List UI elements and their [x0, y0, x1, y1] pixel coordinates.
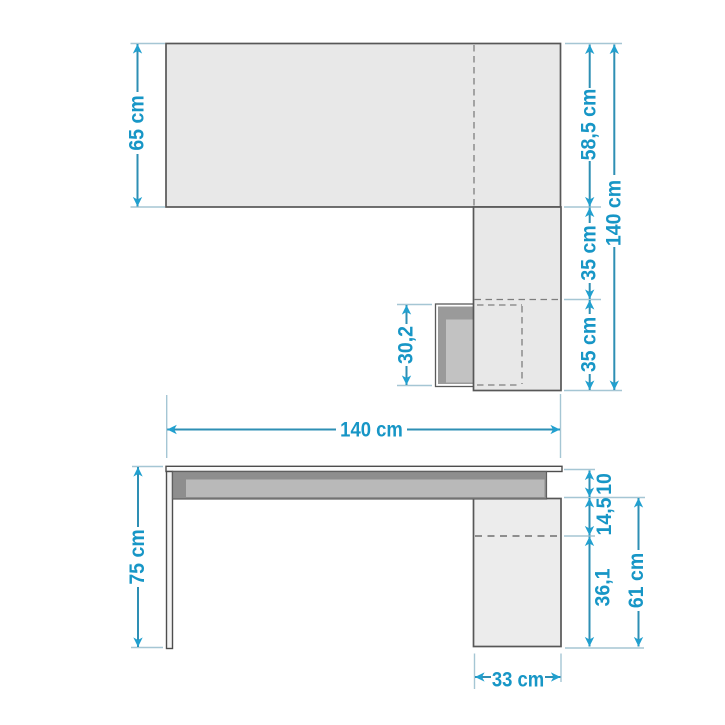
- svg-text:35 cm: 35 cm: [578, 225, 601, 280]
- svg-text:14,5: 14,5: [593, 498, 616, 536]
- svg-text:140 cm: 140 cm: [340, 418, 403, 441]
- svg-text:58,5 cm: 58,5 cm: [578, 89, 601, 161]
- svg-text:33 cm: 33 cm: [492, 668, 544, 691]
- svg-text:61 cm: 61 cm: [625, 553, 648, 608]
- svg-text:10: 10: [593, 473, 616, 495]
- svg-text:140 cm: 140 cm: [603, 180, 626, 246]
- svg-text:30,2: 30,2: [395, 326, 418, 364]
- svg-text:75 cm: 75 cm: [126, 529, 149, 584]
- svg-text:35 cm: 35 cm: [578, 317, 601, 372]
- svg-text:36,1: 36,1: [592, 569, 615, 607]
- svg-text:65 cm: 65 cm: [126, 95, 149, 150]
